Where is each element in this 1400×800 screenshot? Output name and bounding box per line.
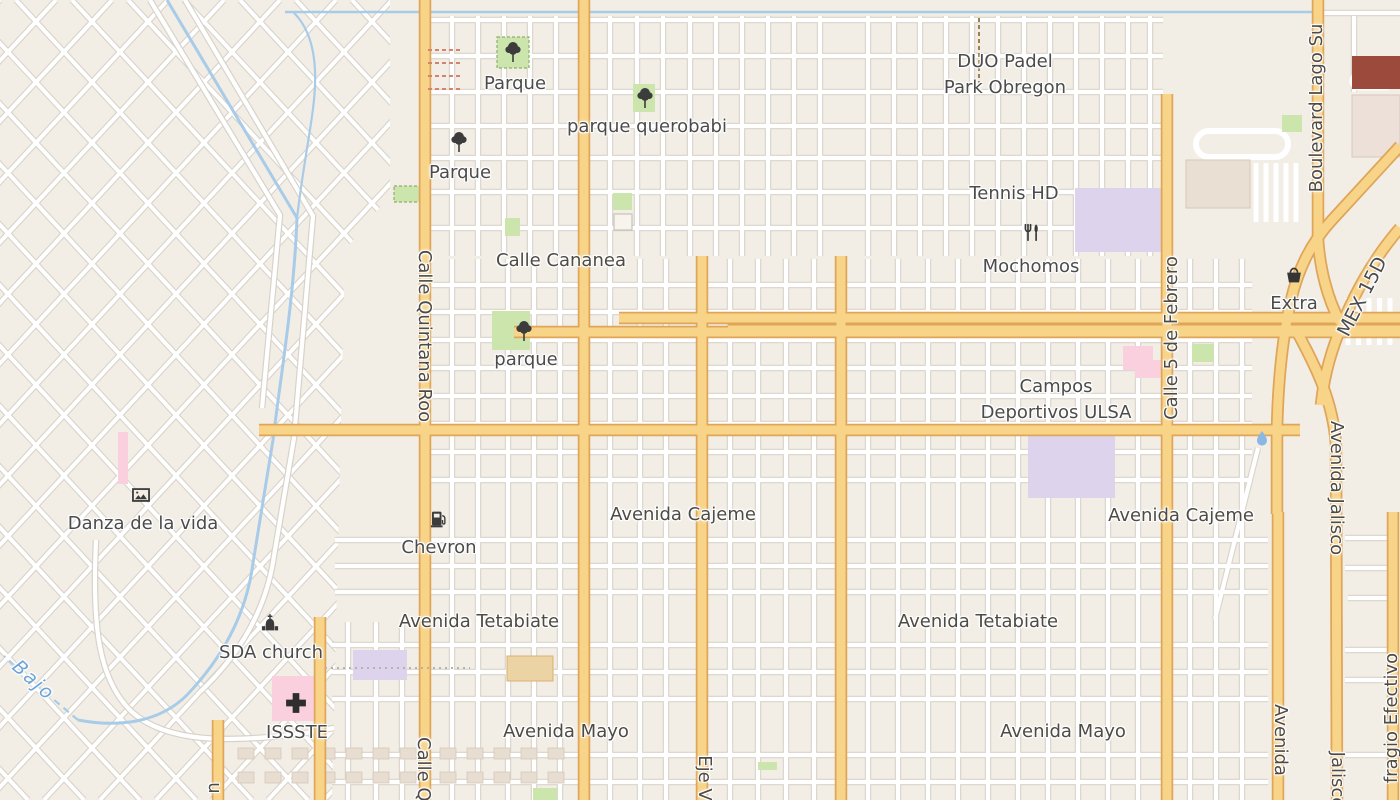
- street-label-eje: Eje V: [691, 755, 717, 800]
- tree-icon: [634, 86, 656, 110]
- street-label-avenida-jalisco: Avenida Jalisco: [1323, 421, 1349, 555]
- restaurant-icon: [1023, 223, 1043, 243]
- poi-label-parque-w: Parque: [429, 160, 491, 186]
- poi-label-tennis-hd: Tennis HD: [969, 181, 1058, 207]
- poi-label-parque-querobabi: parque querobabi: [567, 114, 727, 140]
- artwork-icon: [131, 486, 152, 504]
- poi-label-campos-line1: Campos: [981, 374, 1132, 400]
- street-label-5-de-febrero: Calle 5 de Febrero: [1159, 256, 1185, 420]
- poi-label-parque-s: parque: [494, 347, 557, 373]
- street-label-boulevard-lago: Boulevard Lago Su: [1304, 24, 1330, 193]
- poi-label-mochomos: Mochomos: [983, 254, 1080, 280]
- street-label-tetabiate-left: Avenida Tetabiate: [399, 609, 559, 635]
- street-label-mayo-right: Avenida Mayo: [1000, 719, 1126, 745]
- fuel-icon: [429, 510, 448, 529]
- street-label-quintana-roo-bottom: Calle Qu: [410, 737, 436, 800]
- street-label-quintana-roo: Calle Quintana Roo: [411, 250, 437, 422]
- street-label-fragment: u: [201, 782, 227, 793]
- shopping-basket-icon: [1285, 266, 1304, 285]
- poi-label-duo-padel: DUO PadelPark Obregon: [944, 49, 1066, 101]
- poi-label-extra: Extra: [1270, 291, 1318, 317]
- poi-label-duo-padel-line2: Park Obregon: [944, 75, 1066, 101]
- street-label-tetabiate-right: Avenida Tetabiate: [898, 609, 1058, 635]
- street-label-cajeme-left: Avenida Cajeme: [610, 502, 756, 528]
- tree-icon: [448, 130, 470, 154]
- street-label-cananea: Calle Cananea: [496, 248, 626, 274]
- map-canvas[interactable]: Calle Cananea Avenida Cajeme Avenida Caj…: [0, 0, 1400, 800]
- poi-label-chevron: Chevron: [401, 535, 476, 561]
- street-label-cajeme-right: Avenida Cajeme: [1108, 503, 1254, 529]
- poi-label-parque-nw: Parque: [484, 71, 546, 97]
- hospital-cross-icon: [284, 691, 309, 716]
- tree-icon: [513, 319, 535, 343]
- church-icon: [260, 613, 281, 632]
- street-label-avenida-bottom: Avenida: [1267, 704, 1293, 776]
- poi-label-danza: Danza de la vida: [68, 511, 219, 537]
- poi-label-sda-church: SDA church: [219, 640, 323, 666]
- poi-label-issste: ISSSTE: [266, 720, 328, 746]
- street-label-mayo-left: Avenida Mayo: [503, 719, 629, 745]
- street-label-jalisco-bottom: Jalisco: [1324, 752, 1350, 800]
- street-label-sufragio: fragio Efectivo: [1379, 653, 1400, 783]
- tree-icon: [502, 40, 524, 64]
- poi-label-duo-padel-line1: DUO Padel: [944, 49, 1066, 75]
- poi-label-campos-line2: Deportivos ULSA: [981, 400, 1132, 426]
- poi-label-campos-ulsa: CamposDeportivos ULSA: [981, 374, 1132, 426]
